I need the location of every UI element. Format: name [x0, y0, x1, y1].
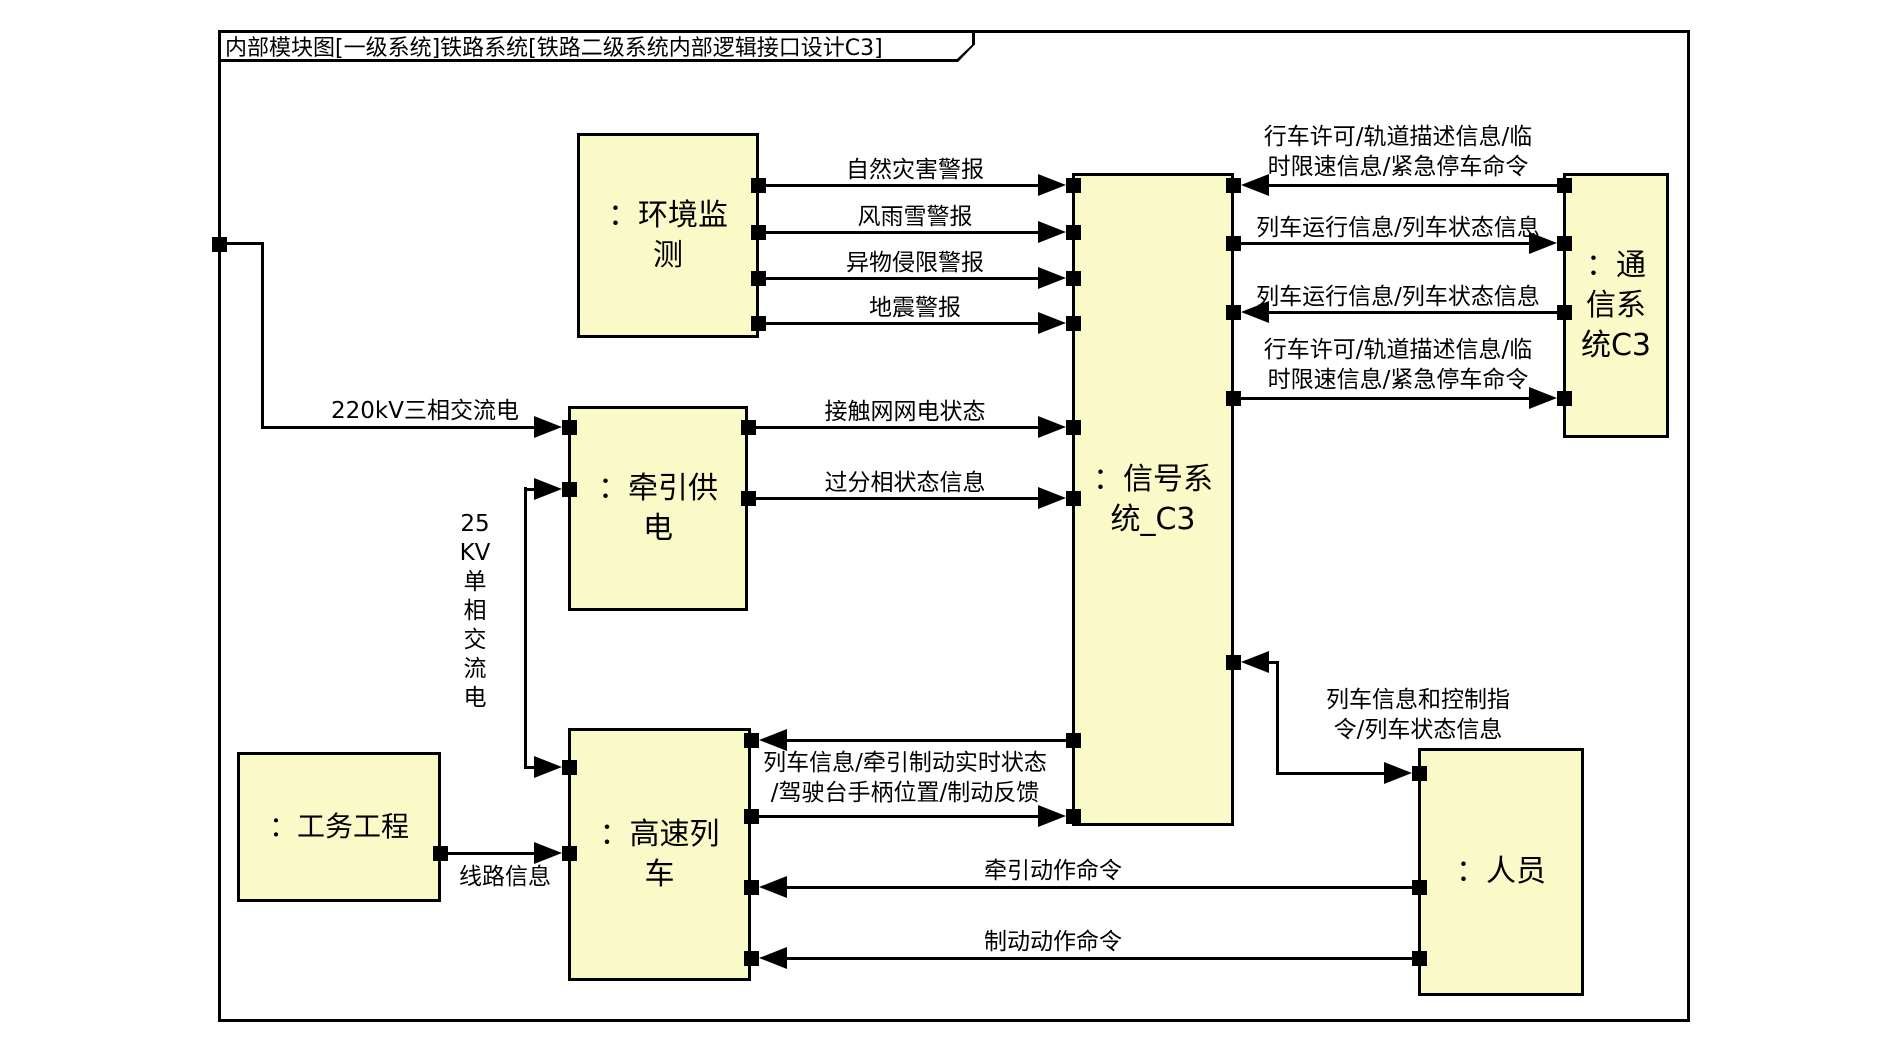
block-high-speed-train[interactable]: ：高速列 车	[568, 728, 751, 981]
flow-label-earthquake: 地震警报	[765, 293, 1065, 323]
flow-port	[1412, 880, 1427, 895]
flow-label-line-info: 线路信息	[405, 862, 605, 892]
flow-port	[744, 733, 759, 748]
block-traction-power[interactable]: ：牵引供 电	[568, 406, 748, 611]
flow-label-25kv: 25 KV 单 相 交 流 电	[445, 510, 505, 713]
flow-line	[524, 488, 534, 491]
flow-line	[1240, 397, 1529, 400]
flow-port	[1226, 391, 1241, 406]
flow-port	[1066, 271, 1081, 286]
flow-label-wind-rain-snow: 风雨雪警报	[765, 202, 1065, 232]
flow-port	[562, 760, 577, 775]
flow-port	[1557, 236, 1572, 251]
flow-line	[261, 242, 264, 428]
flow-port	[744, 880, 759, 895]
flow-label-train-run-info-out: 列车运行信息/列车状态信息	[1248, 213, 1548, 243]
block-signal-system-c3[interactable]: ：信号系 统_C3	[1072, 173, 1234, 826]
flow-line	[787, 957, 1412, 960]
flow-arrowhead	[1038, 805, 1066, 827]
flow-label-train-feedback: 列车信息/牵引制动实时状态 /驾驶台手柄位置/制动反馈	[745, 748, 1065, 808]
flow-port	[744, 951, 759, 966]
diagram-title: 内部模块图[一级系统]铁路系统[铁路二级系统内部逻辑接口设计C3]	[221, 33, 972, 59]
block-communication-system-c3[interactable]: ：通 信系 统C3	[1563, 173, 1669, 438]
flow-label-train-control-info: 列车信息和控制指 令/列车状态信息	[1268, 685, 1568, 745]
flow-port	[1226, 236, 1241, 251]
flow-port	[1557, 391, 1572, 406]
block-personnel[interactable]: ：人员	[1418, 748, 1584, 996]
flow-port	[562, 482, 577, 497]
flow-label-movement-authority-bottom: 行车许可/轨道描述信息/临 时限速信息/紧急停车命令	[1248, 335, 1548, 395]
flow-port	[1066, 809, 1081, 824]
flow-port	[1066, 733, 1081, 748]
flow-line	[524, 487, 527, 769]
diagram-title-tab: 内部模块图[一级系统]铁路系统[铁路二级系统内部逻辑接口设计C3]	[218, 30, 975, 62]
flow-port	[1412, 766, 1427, 781]
flow-line	[787, 739, 1066, 742]
flow-port	[562, 846, 577, 861]
flow-label-natural-disaster: 自然灾害警报	[765, 155, 1065, 185]
block-environment-monitoring[interactable]: ：环境监 测	[577, 133, 759, 338]
flow-port	[1226, 178, 1241, 193]
flow-line	[219, 242, 264, 245]
flow-line	[787, 886, 1412, 889]
flow-line	[524, 766, 534, 769]
flow-port	[1066, 178, 1081, 193]
flow-port	[1557, 305, 1572, 320]
flow-port	[1066, 225, 1081, 240]
diagram-canvas: 内部模块图[一级系统]铁路系统[铁路二级系统内部逻辑接口设计C3] ：环境监 测…	[0, 0, 1891, 1048]
flow-arrowhead	[1241, 651, 1269, 673]
flow-port	[1226, 655, 1241, 670]
flow-arrowhead	[759, 947, 787, 969]
flow-label-phase-status: 过分相状态信息	[755, 468, 1055, 498]
flow-port	[1226, 305, 1241, 320]
flow-label-220kv: 220kV三相交流电	[275, 396, 575, 426]
flow-label-brake-cmd: 制动动作命令	[903, 927, 1203, 957]
flow-arrowhead	[534, 842, 562, 864]
flow-arrowhead	[759, 876, 787, 898]
flow-label-traction-cmd: 牵引动作命令	[903, 856, 1203, 886]
flow-label-train-run-info-in: 列车运行信息/列车状态信息	[1248, 282, 1548, 312]
flow-port	[1412, 951, 1427, 966]
flow-port	[1066, 420, 1081, 435]
flow-line	[758, 815, 1038, 818]
flow-arrowhead	[1384, 762, 1412, 784]
flow-port	[1066, 316, 1081, 331]
flow-label-foreign-object: 异物侵限警报	[765, 248, 1065, 278]
flow-label-catenary-status: 接触网网电状态	[755, 397, 1055, 427]
flow-port	[1066, 491, 1081, 506]
flow-arrowhead	[534, 478, 562, 500]
flow-port	[1557, 178, 1572, 193]
flow-line	[446, 852, 534, 855]
flow-label-movement-authority-top: 行车许可/轨道描述信息/临 时限速信息/紧急停车命令	[1248, 122, 1548, 182]
flow-line	[1276, 772, 1384, 775]
flow-line	[1269, 184, 1557, 187]
flow-arrowhead	[534, 756, 562, 778]
flow-line	[261, 426, 534, 429]
flow-port	[744, 809, 759, 824]
